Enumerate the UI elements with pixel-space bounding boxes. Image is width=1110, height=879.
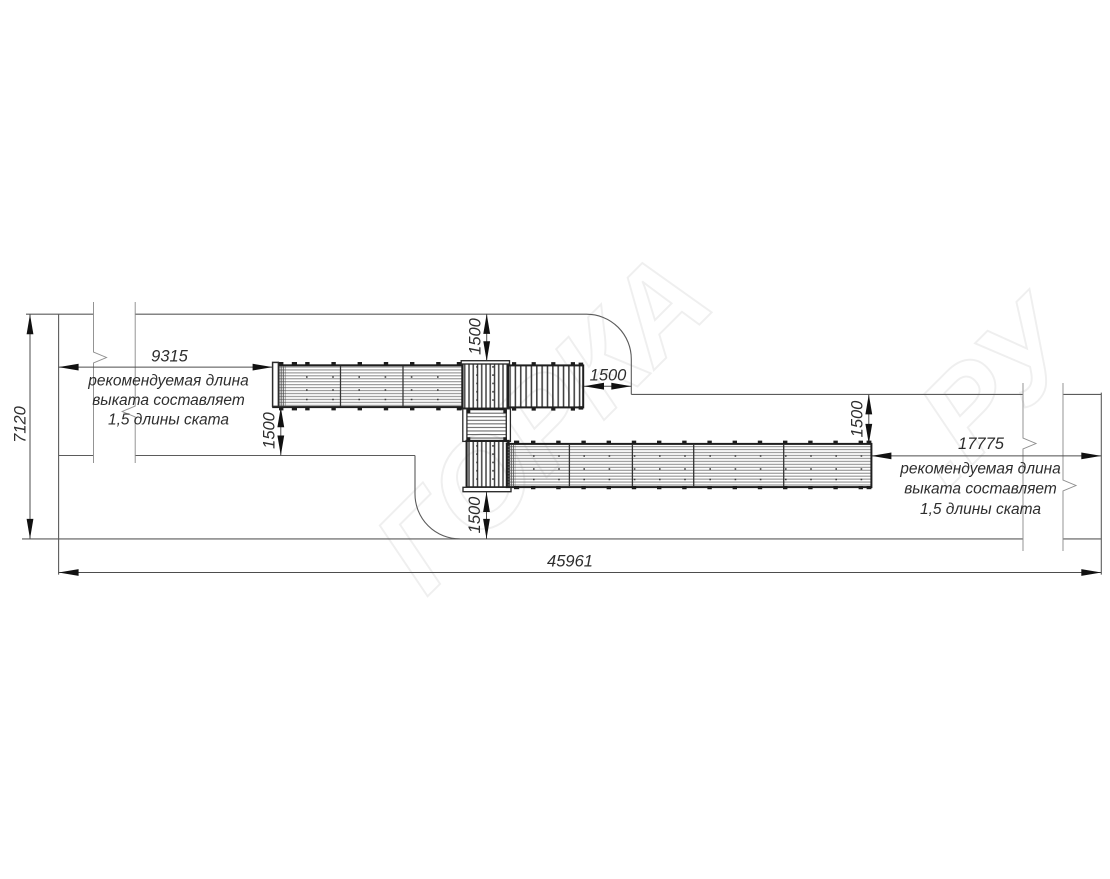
svg-text:1,5 длины ската: 1,5 длины ската	[920, 501, 1041, 518]
svg-text:9315: 9315	[151, 348, 189, 366]
svg-text:1500: 1500	[466, 496, 484, 534]
svg-text:выката составляет: выката составляет	[92, 392, 245, 409]
svg-text:выката составляет: выката составляет	[904, 481, 1057, 498]
svg-text:45961: 45961	[547, 553, 593, 571]
svg-text:1500: 1500	[590, 367, 628, 385]
svg-text:1,5 длины ската: 1,5 длины ската	[108, 412, 229, 429]
svg-text:рекомендуемая длина: рекомендуемая длина	[899, 461, 1061, 478]
svg-text:7120: 7120	[12, 405, 30, 443]
svg-text:1500: 1500	[261, 411, 279, 449]
svg-text:ГОРКА: ГОРКА	[348, 228, 736, 616]
svg-text:рекомендуемая длина: рекомендуемая длина	[87, 373, 249, 390]
svg-text:1500: 1500	[849, 400, 867, 438]
svg-text:17775: 17775	[958, 435, 1005, 453]
svg-text:1500: 1500	[467, 317, 485, 355]
